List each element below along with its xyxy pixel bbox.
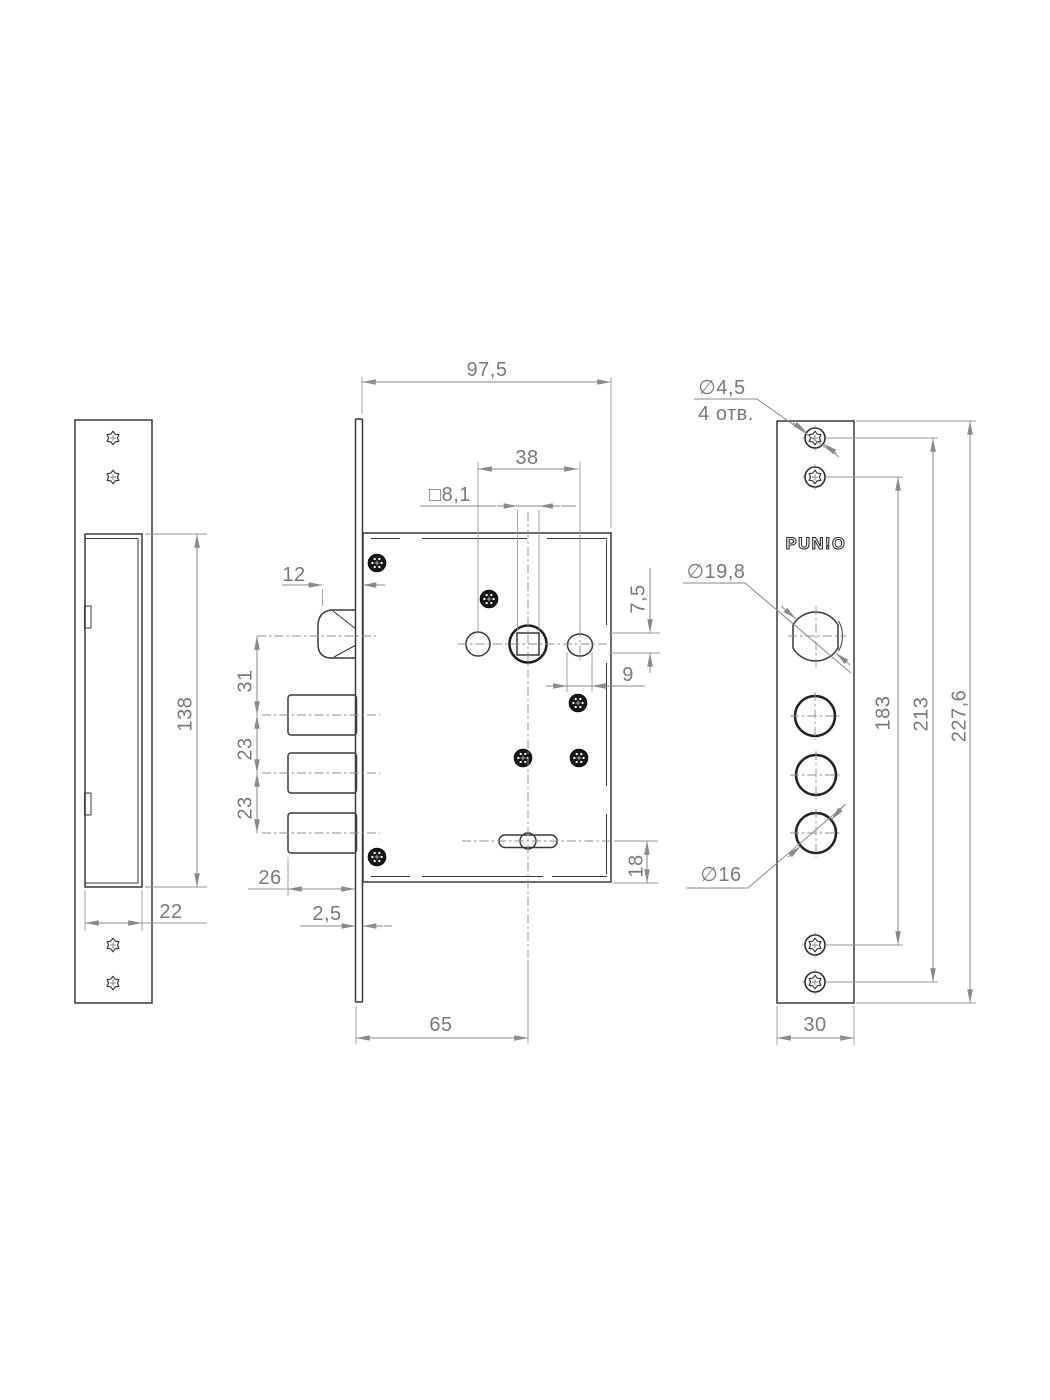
faceplate-screw-icon xyxy=(802,932,827,957)
strike-cutout xyxy=(85,534,142,887)
screw-icon xyxy=(107,431,119,445)
dim-label-slot-offset: 9 xyxy=(622,664,634,686)
dim-label-bolt-pitch-b: 23 xyxy=(234,796,256,819)
dim-label-cutout-width: 22 xyxy=(159,901,182,923)
leader-arrow xyxy=(781,606,796,619)
dim-label-latch-projection: 12 xyxy=(282,564,305,586)
dim-label-face-width: 30 xyxy=(803,1014,826,1036)
leader-arrow xyxy=(793,423,807,433)
dim-label-cutout-height: 138 xyxy=(174,697,196,732)
dim-label-backset: 65 xyxy=(429,1014,452,1036)
dim-label-edge-offset: 7,5 xyxy=(627,584,649,613)
screw-icon xyxy=(107,976,119,990)
dim-label-screw-hole-dia: ∅4,5 xyxy=(698,377,745,399)
dim-label-body-width: 97,5 xyxy=(467,359,508,381)
drawing-svg: 138 22 xyxy=(0,0,1050,1400)
dim-label-screw-hole-count: 4 отв. xyxy=(698,403,754,425)
dim-label-bolt-dia: ∅16 xyxy=(700,864,741,886)
dim-label-span-outer: 213 xyxy=(910,697,932,732)
lock-technical-drawing: 138 22 xyxy=(0,0,1050,1400)
latch-bevel xyxy=(333,611,356,657)
extension-lines xyxy=(85,890,207,931)
leader-arrow xyxy=(836,653,850,665)
right-view-faceplate: PUN!O ∅4,5 4 отв. ∅19,8 ∅16 183 213 xyxy=(683,377,976,1045)
dim-label-hole-spacing: 38 xyxy=(515,447,538,469)
dim-label-bolt-throw: 26 xyxy=(258,867,281,889)
middle-view-lock-body: 97,5 38 □8,1 12 31 23 23 26 2,5 xyxy=(234,359,660,1044)
extension-lines xyxy=(478,462,580,636)
dim-label-total-height: 227,6 xyxy=(948,690,970,743)
faceplate-outline xyxy=(777,421,854,1003)
leader-arrow xyxy=(823,444,837,454)
extension-lines xyxy=(362,377,611,528)
case-screw-icon xyxy=(480,590,498,608)
case-screw-icon xyxy=(569,694,587,712)
strike-cutout-inner-edge xyxy=(85,539,138,884)
strike-plate-outline xyxy=(75,420,152,1003)
dim-label-square-size: □8,1 xyxy=(429,484,471,506)
dim-label-cylinder-dia: ∅19,8 xyxy=(687,561,746,583)
brand-logo: PUN!O xyxy=(786,535,847,553)
dim-label-bottom-slot-offset: 18 xyxy=(625,854,647,877)
case-screw-icon xyxy=(368,848,386,866)
latch-bolt xyxy=(318,610,356,658)
screw-icon xyxy=(107,938,119,952)
dim-label-bolt-pitch-a: 23 xyxy=(234,737,256,760)
dim-label-plate-thickness: 2,5 xyxy=(312,903,341,925)
cylinder-hole xyxy=(793,612,838,661)
case-screw-icon xyxy=(368,554,386,572)
leader-arrow xyxy=(831,807,843,820)
case-screw-icon xyxy=(514,749,532,767)
extension-lines xyxy=(609,633,660,653)
left-view-strike-box: 138 22 xyxy=(75,420,207,1003)
screw-icon xyxy=(107,470,119,484)
dim-label-span-inner: 183 xyxy=(872,696,894,731)
case-screw-icon xyxy=(570,749,588,767)
dim-label-latch-to-bolt: 31 xyxy=(234,669,256,692)
faceplate-screw-icon xyxy=(802,969,827,994)
faceplate-screw-icon xyxy=(802,464,827,489)
